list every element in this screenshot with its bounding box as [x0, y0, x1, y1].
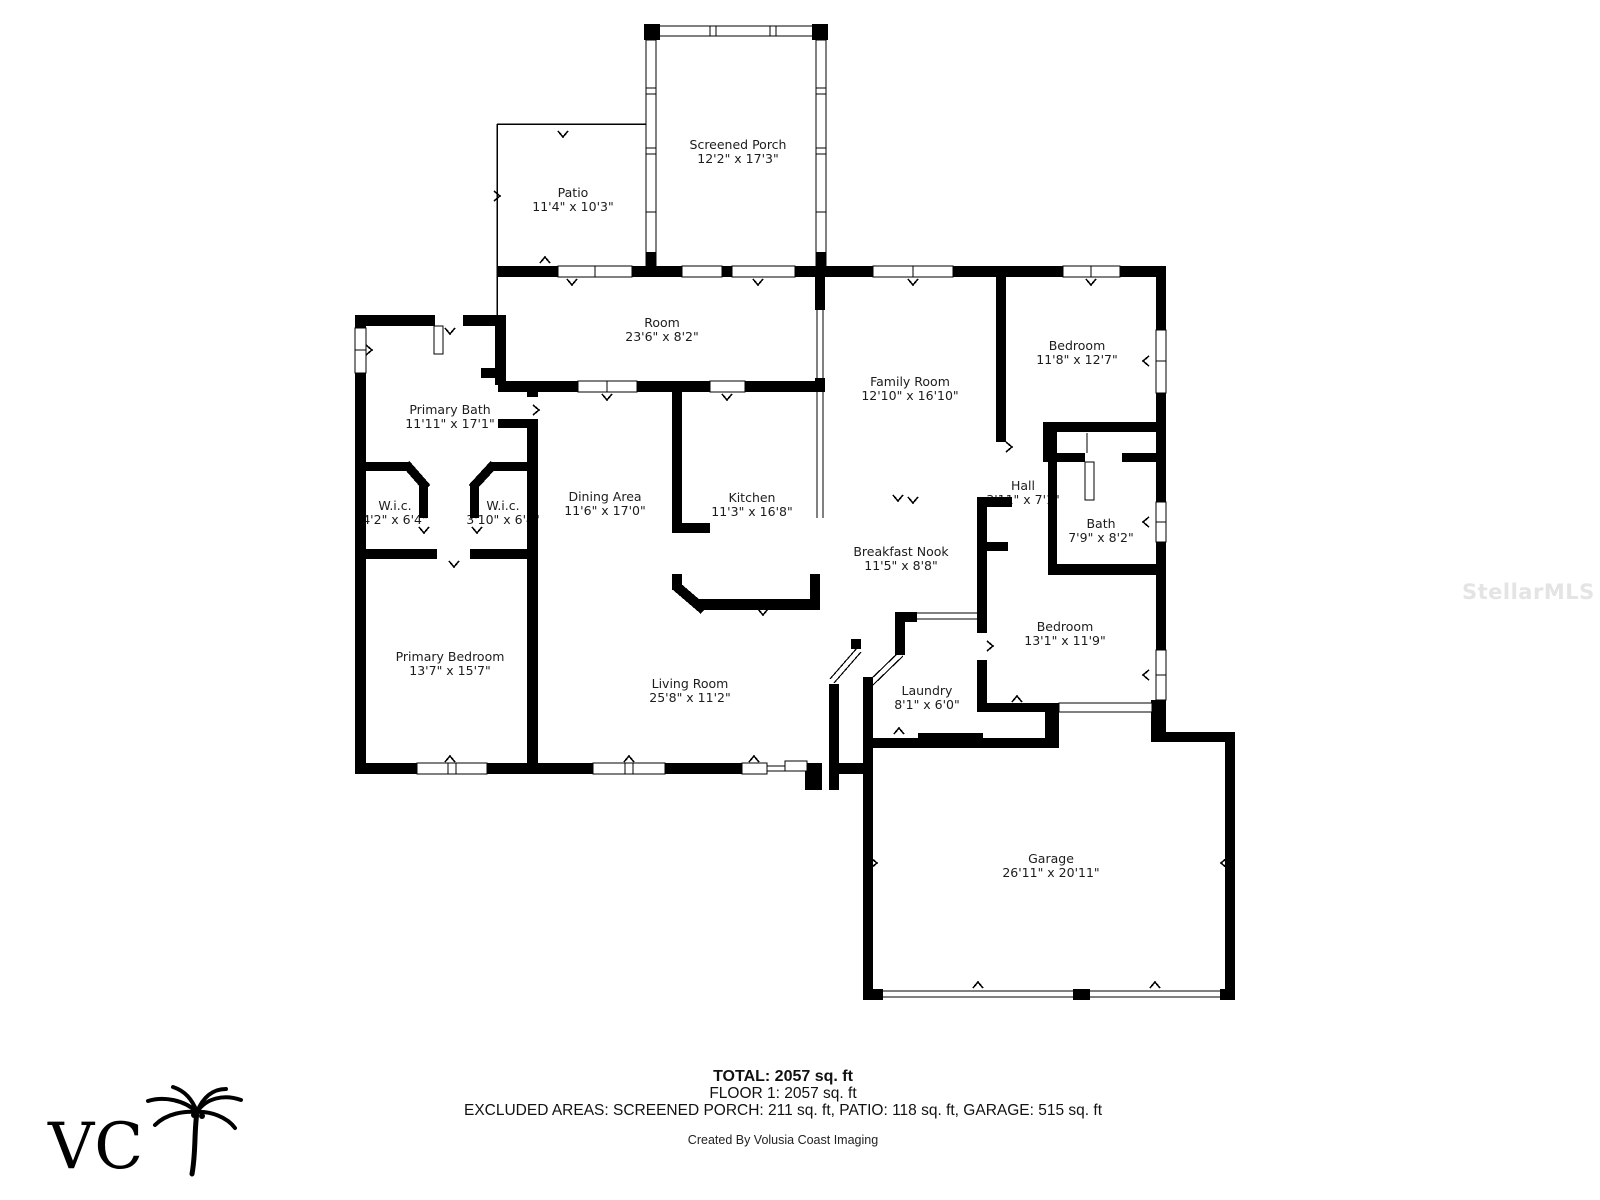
tick-mark	[540, 257, 550, 263]
angled-walls	[406, 464, 704, 610]
tick-mark	[602, 394, 612, 400]
floor-plan-drawing	[0, 0, 1600, 1200]
tick-mark	[894, 728, 904, 734]
floor-area-text: FLOOR 1: 2057 sq. ft	[0, 1085, 1583, 1102]
tick-mark	[558, 131, 568, 137]
opening-tick-marks	[366, 131, 1227, 988]
tick-mark	[533, 405, 539, 415]
credit-text: Created By Volusia Coast Imaging	[0, 1133, 1583, 1147]
tick-mark	[1150, 982, 1160, 988]
tick-mark	[445, 756, 455, 762]
screened-porch-walls	[644, 24, 828, 266]
tick-mark	[472, 527, 482, 533]
tick-mark	[419, 527, 429, 533]
tick-mark	[1086, 279, 1096, 285]
tick-mark	[908, 279, 918, 285]
tick-mark	[445, 328, 455, 334]
tick-mark	[749, 756, 759, 762]
tick-mark	[624, 756, 634, 762]
tick-mark	[1143, 356, 1149, 366]
tick-mark	[366, 345, 372, 355]
tick-mark	[1143, 517, 1149, 527]
openings	[767, 310, 1220, 997]
tick-mark	[1006, 442, 1012, 452]
tick-mark	[1012, 696, 1022, 702]
tick-mark	[722, 394, 732, 400]
tick-mark	[987, 641, 993, 651]
tick-mark	[973, 982, 983, 988]
tick-mark	[1143, 670, 1149, 680]
walls	[355, 266, 1235, 1000]
area-summary: TOTAL: 2057 sq. ft FLOOR 1: 2057 sq. ft …	[0, 1068, 1583, 1147]
patio-outline	[497, 124, 650, 315]
excluded-area-text: EXCLUDED AREAS: SCREENED PORCH: 211 sq. …	[0, 1102, 1583, 1119]
tick-mark	[893, 495, 903, 501]
tick-mark	[567, 279, 577, 285]
floor-plan-page: Screened Porch 12'2" x 17'3" Patio 11'4"…	[0, 0, 1600, 1200]
stellar-mls-watermark: StellarMLS	[1462, 580, 1595, 604]
tick-mark	[449, 561, 459, 567]
porch-corner-posts	[644, 24, 828, 266]
total-area-text: TOTAL: 2057 sq. ft	[0, 1068, 1583, 1085]
tick-mark	[908, 497, 918, 503]
windows	[355, 266, 1166, 774]
tick-mark	[753, 279, 763, 285]
